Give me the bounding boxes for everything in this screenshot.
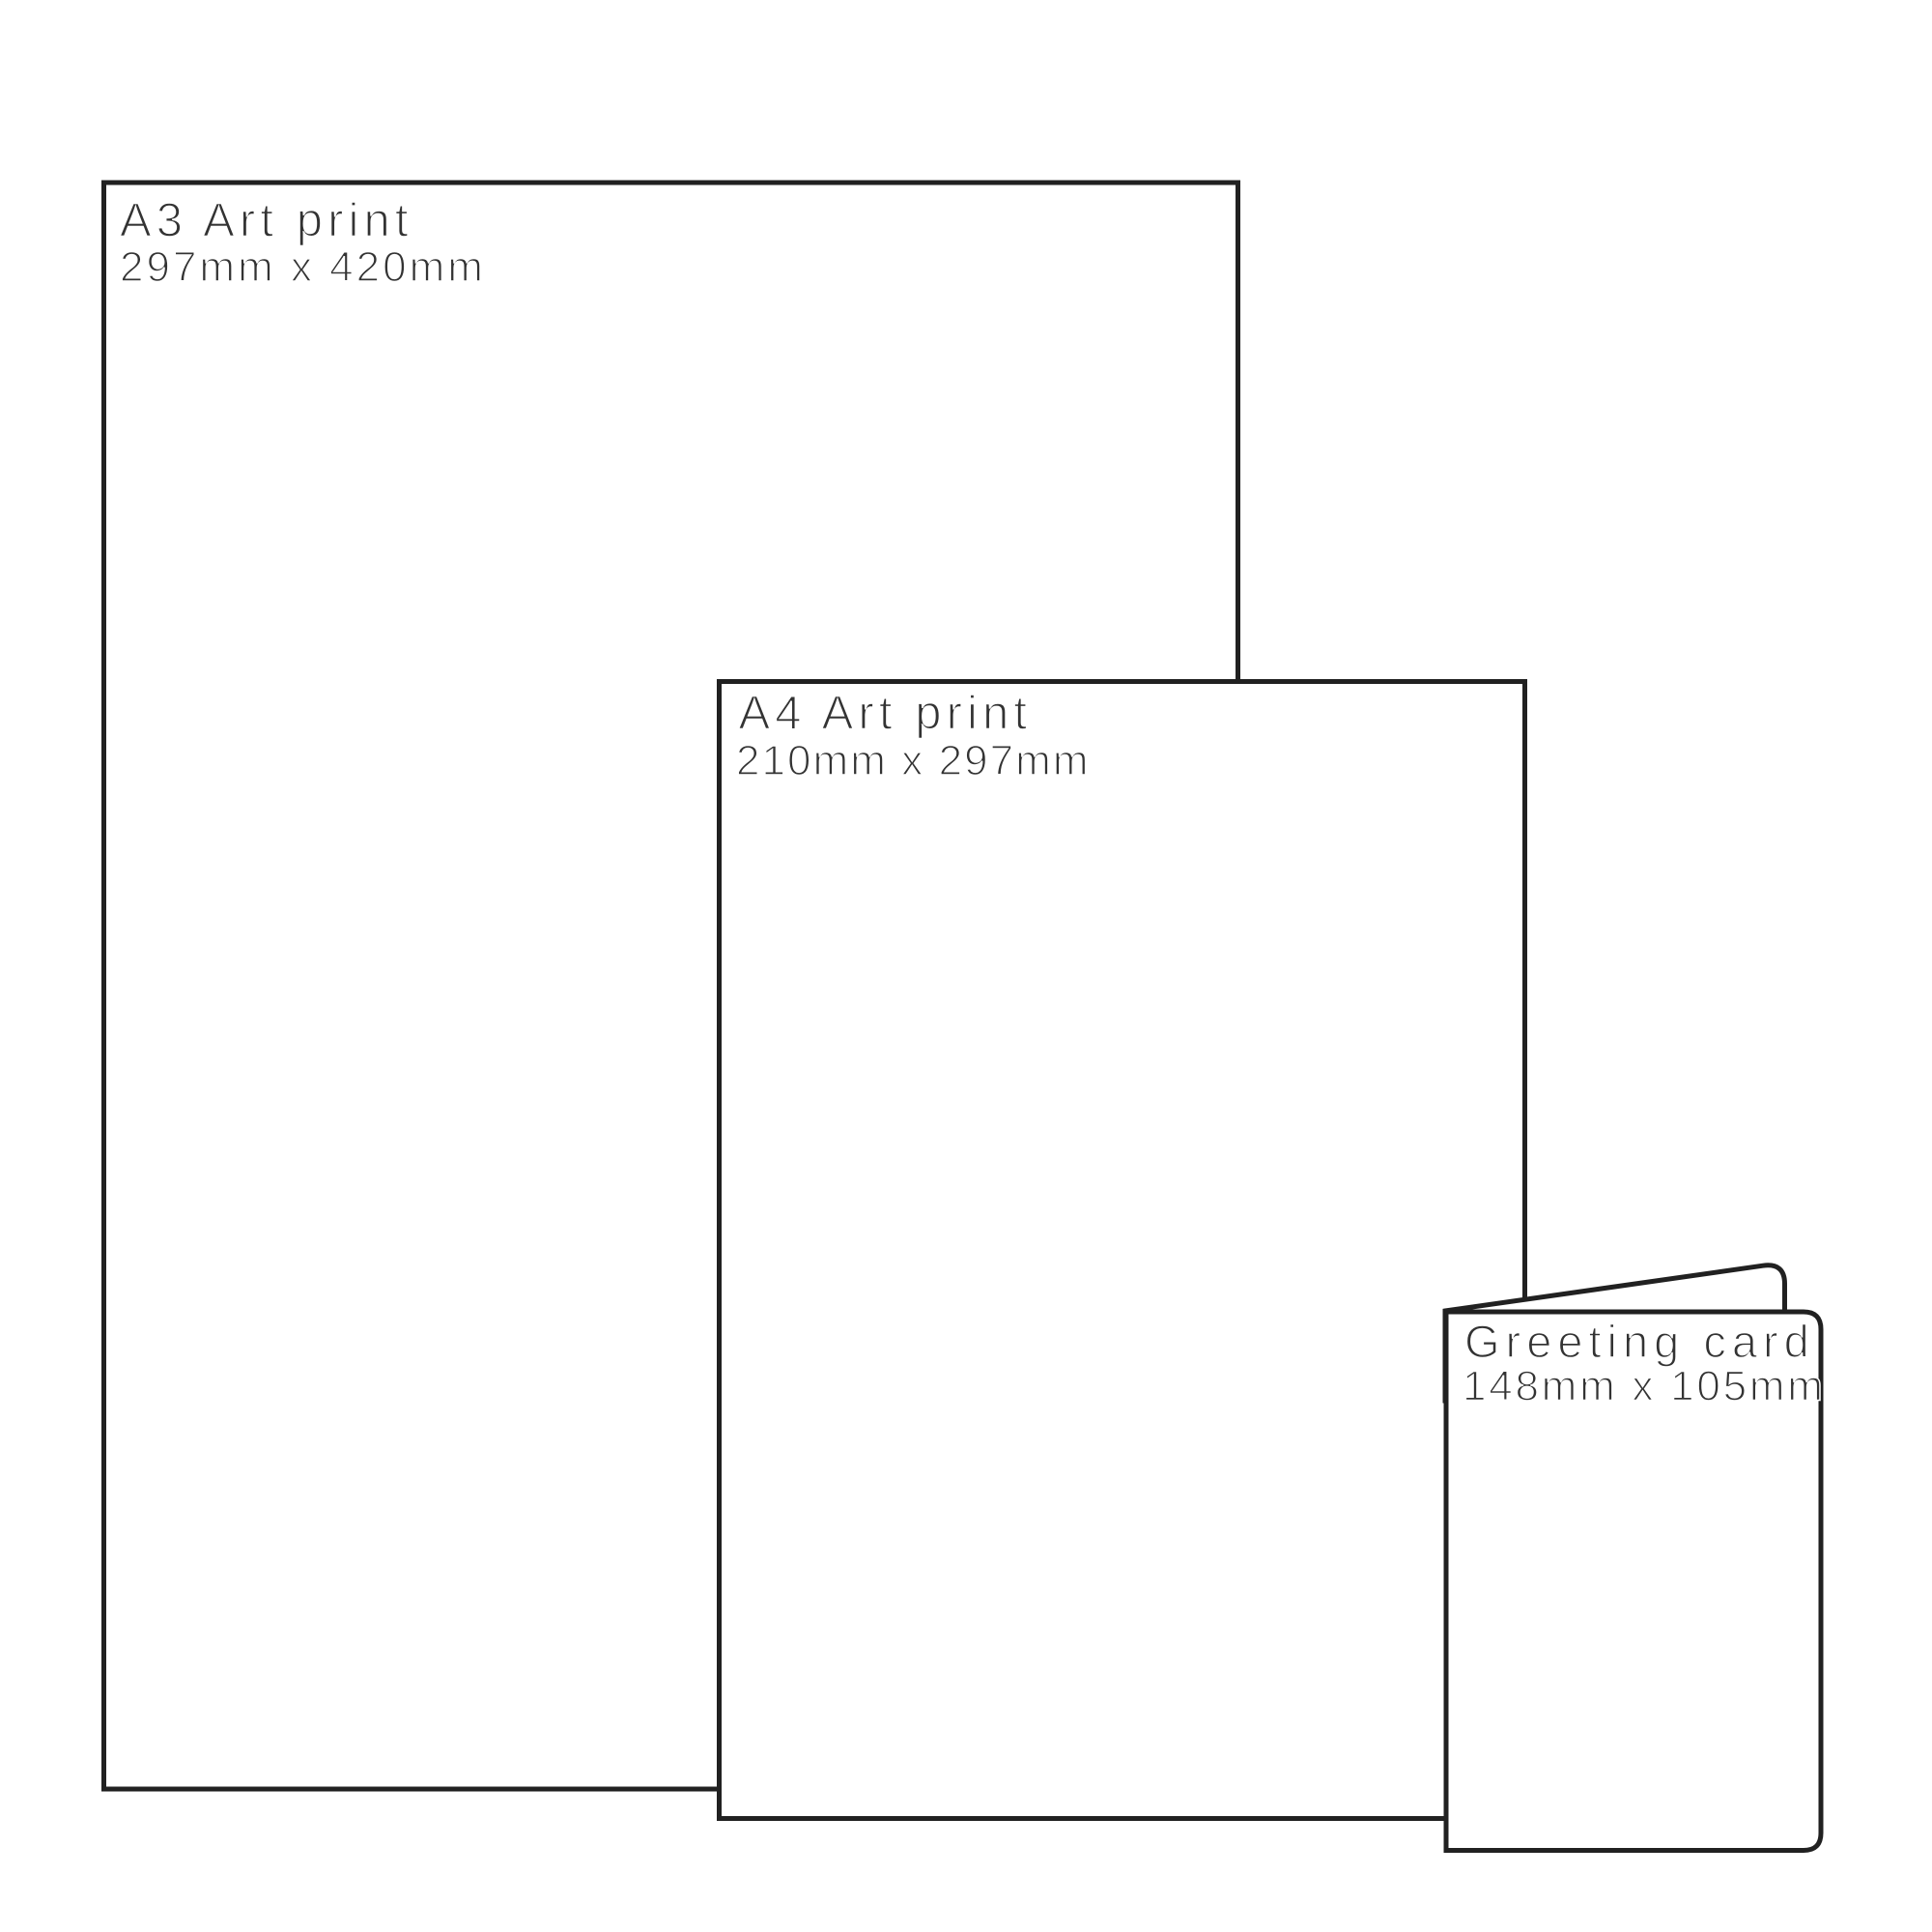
svg-text:148mm x 105mm: 148mm x 105mm — [1463, 1363, 1826, 1410]
svg-text:210mm x 297mm: 210mm x 297mm — [736, 737, 1091, 784]
svg-text:297mm x 420mm: 297mm x 420mm — [120, 243, 486, 291]
svg-text:Greeting card: Greeting card — [1464, 1316, 1815, 1367]
svg-text:A3 Art print: A3 Art print — [120, 195, 413, 247]
svg-text:A4 Art print: A4 Art print — [739, 688, 1033, 740]
